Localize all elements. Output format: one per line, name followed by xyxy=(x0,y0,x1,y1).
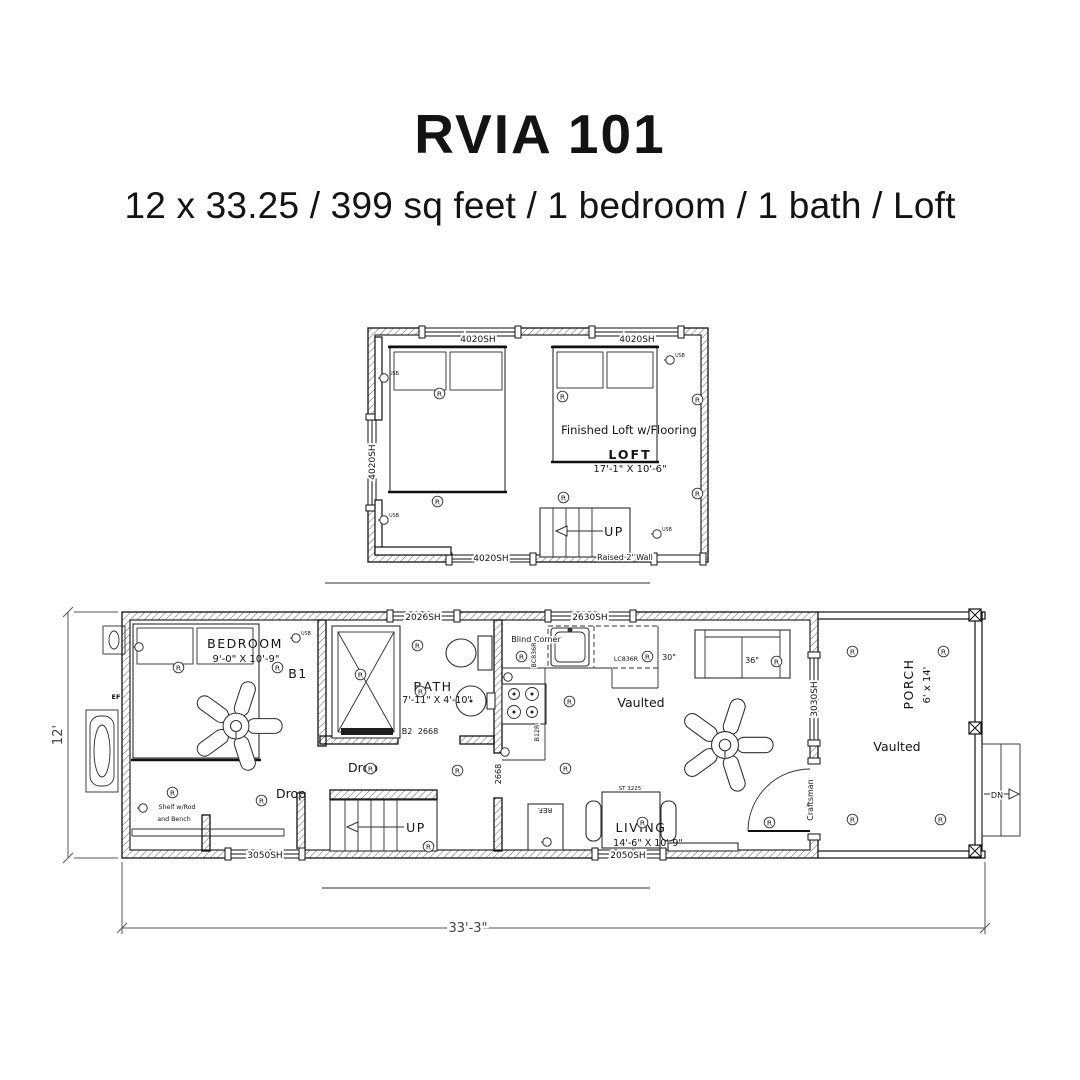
toilet xyxy=(446,639,476,667)
table-label: ST 3225 xyxy=(619,786,642,792)
upper-cabinet-width: 30" xyxy=(662,653,676,662)
loft-stairs: UP xyxy=(540,508,630,557)
recessed-light-icon xyxy=(432,496,443,507)
recessed-light-icon xyxy=(256,795,267,806)
recessed-light-icon xyxy=(935,814,946,825)
bath-dims: 7'-11" X 4'-10" xyxy=(402,695,472,706)
egress-window xyxy=(86,710,118,792)
vaulted-label: Vaulted xyxy=(617,695,664,710)
closet-wall xyxy=(297,793,305,851)
loft-bed-right xyxy=(551,346,659,462)
drop-ceiling-label: Drop xyxy=(276,786,306,801)
shelf-label: Shelf w/Rod xyxy=(158,804,195,811)
recessed-light-icon xyxy=(355,669,366,680)
recessed-light-icon xyxy=(516,651,527,662)
main-floor-plan: 2026SH 2630SH 3050SH xyxy=(86,609,1020,861)
svg-text:3030SH: 3030SH xyxy=(810,681,820,716)
recessed-light-icon xyxy=(173,662,184,673)
recessed-light-icon xyxy=(764,817,775,828)
upper-cabinet-label: LC836R xyxy=(614,656,639,663)
porch-post-icon xyxy=(969,609,981,621)
svg-text:4020SH: 4020SH xyxy=(619,335,654,345)
stove xyxy=(502,684,546,724)
loft-stairs-label: UP xyxy=(604,524,624,539)
recessed-light-icon xyxy=(452,765,463,776)
barn-door-2-tag: B2 xyxy=(402,727,413,736)
front-door-label: Craftsman xyxy=(806,779,815,821)
floor-plan-drawing: R USB xyxy=(0,0,1080,1080)
recessed-light-icon xyxy=(167,787,178,798)
svg-text:2630SH: 2630SH xyxy=(572,613,607,623)
porch-steps: DN xyxy=(982,744,1020,836)
recessed-light-icon xyxy=(560,763,571,774)
loft-room-label: LOFT xyxy=(608,447,651,462)
recessed-light-icon xyxy=(415,686,426,697)
recessed-light-icon xyxy=(412,640,423,651)
sofa-width: 36" xyxy=(745,656,759,665)
stairs-up-label: UP xyxy=(406,820,426,835)
recessed-light-icon xyxy=(423,841,434,852)
exhaust-fan-label: EF xyxy=(112,693,121,701)
floor-plan-sheet: RVIA 101 12 x 33.25 / 399 sq feet / 1 be… xyxy=(0,0,1080,1080)
overall-width-dim: 33'-3" xyxy=(448,921,487,936)
loft-knee-wall xyxy=(375,547,451,555)
living-dims: 14'-6" X 10'-9" xyxy=(613,838,683,849)
corner-cabinet-label: BC836R xyxy=(531,642,538,668)
bedroom-dims: 9'-0" X 10'-9" xyxy=(213,654,280,665)
bath-wall xyxy=(460,736,494,744)
shelf-label: and Bench xyxy=(157,816,191,823)
barn-door-1-tag: B1 xyxy=(288,666,308,681)
recessed-light-icon xyxy=(938,646,949,657)
recessed-light-icon xyxy=(847,646,858,657)
stair-wall xyxy=(330,790,437,799)
svg-text:3050SH: 3050SH xyxy=(247,851,282,861)
bedroom-label: BEDROOM xyxy=(207,636,283,651)
porch-label: PORCH xyxy=(901,658,916,709)
loft-note: Finished Loft w/Flooring xyxy=(561,423,697,437)
bedroom-wall xyxy=(318,620,326,746)
recessed-light-icon xyxy=(692,394,703,405)
kitchen-wall xyxy=(494,798,502,851)
loft-bed-left xyxy=(388,346,507,492)
recessed-light-icon xyxy=(564,696,575,707)
steps-dn-label: DN xyxy=(991,791,1003,800)
window-3050sh: 3050SH xyxy=(225,848,305,861)
stairs-main: UP xyxy=(330,800,437,851)
porch-post-icon xyxy=(969,722,981,734)
overall-height-dim: 12' xyxy=(51,725,66,745)
window-3030sh: 3030SH xyxy=(808,652,820,746)
recessed-light-icon xyxy=(558,492,569,503)
svg-text:4020SH: 4020SH xyxy=(368,444,378,479)
svg-text:2050SH: 2050SH xyxy=(610,851,645,861)
loft-raised-wall-label: Raised 2' Wall xyxy=(597,553,653,562)
svg-text:4020SH: 4020SH xyxy=(473,554,508,564)
recessed-light-icon xyxy=(637,817,648,828)
fridge-label: REF. xyxy=(538,806,552,814)
closet-wall xyxy=(202,815,210,851)
recessed-light-icon xyxy=(692,488,703,499)
chair xyxy=(586,801,601,841)
recessed-light-icon xyxy=(771,656,782,667)
svg-text:4020SH: 4020SH xyxy=(460,335,495,345)
kitchen-wall xyxy=(494,620,502,753)
kitchen-door-size: 2668 xyxy=(494,764,503,784)
loft-plan: 4020SH 4020SH 4020SH xyxy=(366,326,708,565)
bath-door-size: 2668 xyxy=(418,727,438,736)
svg-text:2026SH: 2026SH xyxy=(405,613,440,623)
recessed-light-icon xyxy=(272,662,283,673)
loft-room-dims: 17'-1" X 10'-6" xyxy=(593,464,666,475)
porch-dims: 6' x 14' xyxy=(922,667,933,704)
vaulted-label: Vaulted xyxy=(873,739,920,754)
porch-post-icon xyxy=(969,845,981,857)
recessed-light-icon xyxy=(847,814,858,825)
loft-window-bottom: 4020SH xyxy=(446,553,536,565)
window-2050sh: 2050SH xyxy=(592,848,666,861)
recessed-light-icon xyxy=(434,388,445,399)
recessed-light-icon xyxy=(642,651,653,662)
recessed-light-icon xyxy=(557,391,568,402)
recessed-light-icon xyxy=(365,763,376,774)
loft-window-left: 4020SH xyxy=(366,414,378,511)
loft-wall-opening xyxy=(651,553,706,565)
base-cabinet-label: B12R xyxy=(534,724,541,741)
